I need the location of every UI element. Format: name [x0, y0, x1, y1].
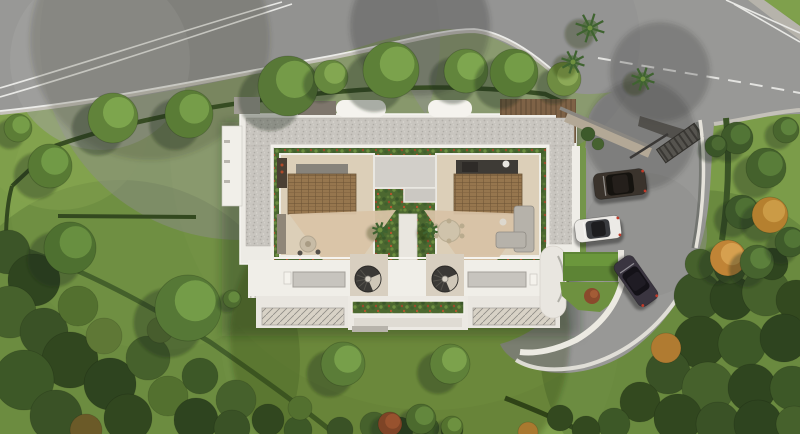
- tree-13-highlight: [442, 347, 467, 372]
- tree-8-highlight: [504, 53, 534, 83]
- west-balcony-strip: [222, 126, 242, 206]
- pergola-left: [288, 174, 356, 214]
- chair-left-2: [298, 251, 303, 256]
- tree-3-highlight: [179, 94, 209, 124]
- tree-26-highlight: [712, 137, 726, 151]
- tree-11-highlight: [175, 280, 216, 321]
- spiral-stair-1-post: [442, 276, 448, 282]
- skylight-cap-left: [284, 272, 291, 284]
- palm-3-crown: [378, 228, 383, 233]
- spiral-stair-0: [355, 266, 381, 292]
- tree-1-highlight: [41, 148, 68, 175]
- island-bush-red-hi: [590, 290, 598, 298]
- skylight-cap-right: [530, 274, 537, 285]
- dining-chair-5: [460, 224, 465, 229]
- tree-5-highlight: [324, 63, 345, 84]
- tree-18-highlight: [731, 125, 751, 145]
- forest-tree-21: [288, 396, 312, 420]
- bbq-coal-1: [281, 164, 284, 167]
- aerial-render-canvas: [0, 0, 800, 434]
- kitchen-sink: [503, 161, 510, 168]
- center-planter: [352, 301, 464, 314]
- car-white-roof: [591, 221, 607, 238]
- gravel-left: [246, 146, 274, 246]
- tree-2-highlight: [103, 97, 134, 128]
- rug-center: [305, 241, 311, 247]
- hedge-mid: [58, 216, 196, 217]
- forest-tree-51: [581, 127, 595, 141]
- tree-6-highlight: [380, 46, 415, 81]
- wing-left-hatch: [262, 308, 344, 325]
- layer-building: [222, 97, 586, 332]
- dining-chair-4: [447, 239, 452, 244]
- west-balcony-door-3: [224, 180, 230, 183]
- dining-chair-3: [447, 219, 452, 224]
- palm-4-crown: [428, 228, 433, 233]
- skylight-right: [468, 272, 526, 287]
- center-walkway: [399, 214, 417, 260]
- palm-1-crown: [571, 60, 576, 65]
- tree-19-highlight: [758, 151, 783, 176]
- forest-tree-32: [718, 320, 766, 368]
- tree-10-highlight: [60, 226, 92, 258]
- sofa-right-short: [496, 232, 526, 248]
- coffee-table: [500, 219, 507, 226]
- spiral-stair-0-post: [365, 276, 371, 282]
- tree-25-highlight: [781, 119, 797, 135]
- kitchen-row-left: [296, 164, 348, 174]
- bbq-coal-2: [281, 171, 284, 174]
- kitchen-blocks: [462, 162, 478, 172]
- gravel-top: [246, 118, 574, 146]
- forest-tree-50: [547, 405, 573, 431]
- forest-tree-7: [86, 318, 122, 354]
- spiral-stair-1: [432, 266, 458, 292]
- tree-21-highlight: [763, 200, 785, 222]
- tree-0-highlight: [12, 116, 29, 133]
- forest-tree-13: [182, 358, 218, 394]
- center-walk-lower: [354, 318, 462, 327]
- west-balcony-door-2: [224, 160, 230, 163]
- tree-16-highlight: [228, 291, 239, 302]
- palm-2-crown: [641, 77, 646, 82]
- forest-tree-4: [58, 286, 98, 326]
- site-plan-render: [0, 0, 800, 434]
- pergola-right: [454, 174, 522, 214]
- tree-12-highlight: [334, 346, 361, 373]
- tree-14-highlight: [415, 406, 434, 425]
- center-step: [352, 326, 388, 332]
- tree-17-highlight: [385, 414, 400, 429]
- center-pad: [374, 156, 436, 188]
- west-balcony-door-1: [224, 140, 230, 143]
- tree-15-highlight: [448, 418, 462, 432]
- skylight-left: [293, 272, 345, 287]
- car-suv-roof: [612, 174, 630, 194]
- dining-chair-6: [460, 234, 465, 239]
- forest-tree-45: [651, 333, 681, 363]
- bench-left: [277, 214, 286, 254]
- forest-tree-52: [592, 138, 604, 150]
- gravel-right: [546, 146, 574, 244]
- forest-tree-17: [252, 404, 284, 434]
- center-pad-step: [404, 188, 436, 202]
- palm-0-crown: [588, 26, 593, 31]
- hedge-block-light: [565, 254, 619, 266]
- chair-left-1: [316, 250, 321, 255]
